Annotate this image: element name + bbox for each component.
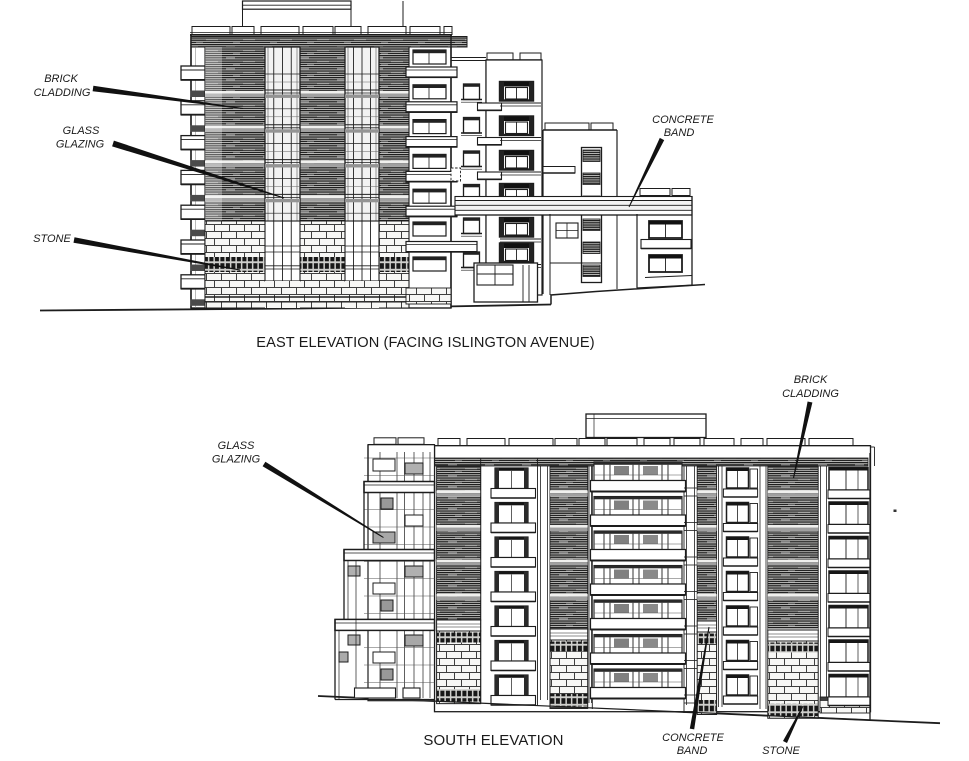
svg-text:BRICK: BRICK xyxy=(44,73,78,85)
svg-text:GLASS: GLASS xyxy=(218,440,255,452)
svg-text:GLAZING: GLAZING xyxy=(212,454,261,466)
svg-text:EAST ELEVATION (FACING ISLINGT: EAST ELEVATION (FACING ISLINGTON AVENUE) xyxy=(256,335,594,351)
svg-text:BAND: BAND xyxy=(664,127,695,139)
svg-text:BRICK: BRICK xyxy=(794,374,828,386)
svg-text:GLAZING: GLAZING xyxy=(56,139,105,151)
svg-text:CLADDING: CLADDING xyxy=(34,87,91,99)
svg-text:CONCRETE: CONCRETE xyxy=(652,114,714,126)
svg-text:CONCRETE: CONCRETE xyxy=(662,732,724,744)
svg-text:SOUTH ELEVATION: SOUTH ELEVATION xyxy=(423,732,563,749)
svg-text:STONE: STONE xyxy=(33,233,71,245)
svg-text:GLASS: GLASS xyxy=(63,125,100,137)
svg-text:BAND: BAND xyxy=(677,745,708,757)
svg-text:STONE: STONE xyxy=(762,745,800,757)
svg-text:CLADDING: CLADDING xyxy=(782,388,839,400)
